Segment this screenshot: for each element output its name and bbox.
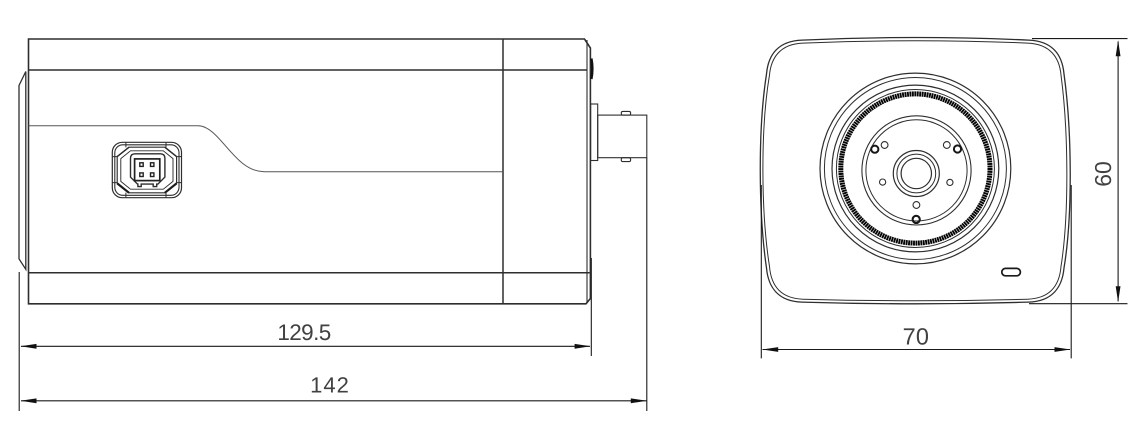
svg-text:60: 60 — [1090, 161, 1116, 187]
svg-text:142: 142 — [310, 372, 350, 397]
svg-text:70: 70 — [903, 324, 930, 350]
svg-text:129.5: 129.5 — [277, 320, 330, 345]
